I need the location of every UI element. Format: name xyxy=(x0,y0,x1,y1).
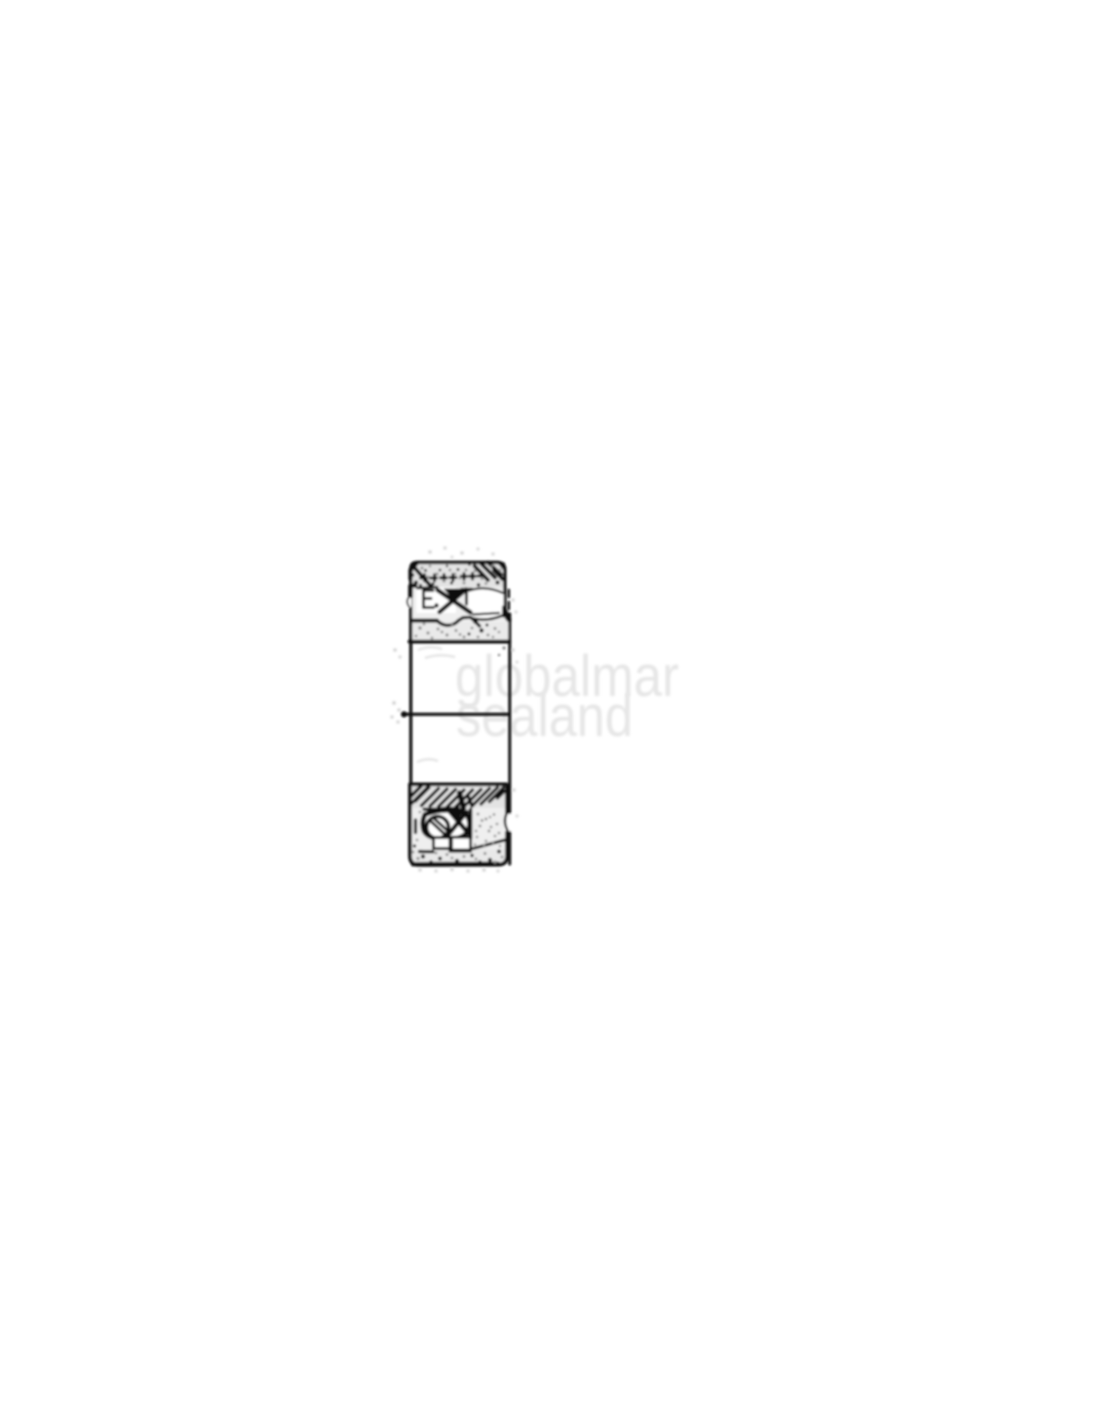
svg-text:sealand: sealand xyxy=(456,684,633,749)
